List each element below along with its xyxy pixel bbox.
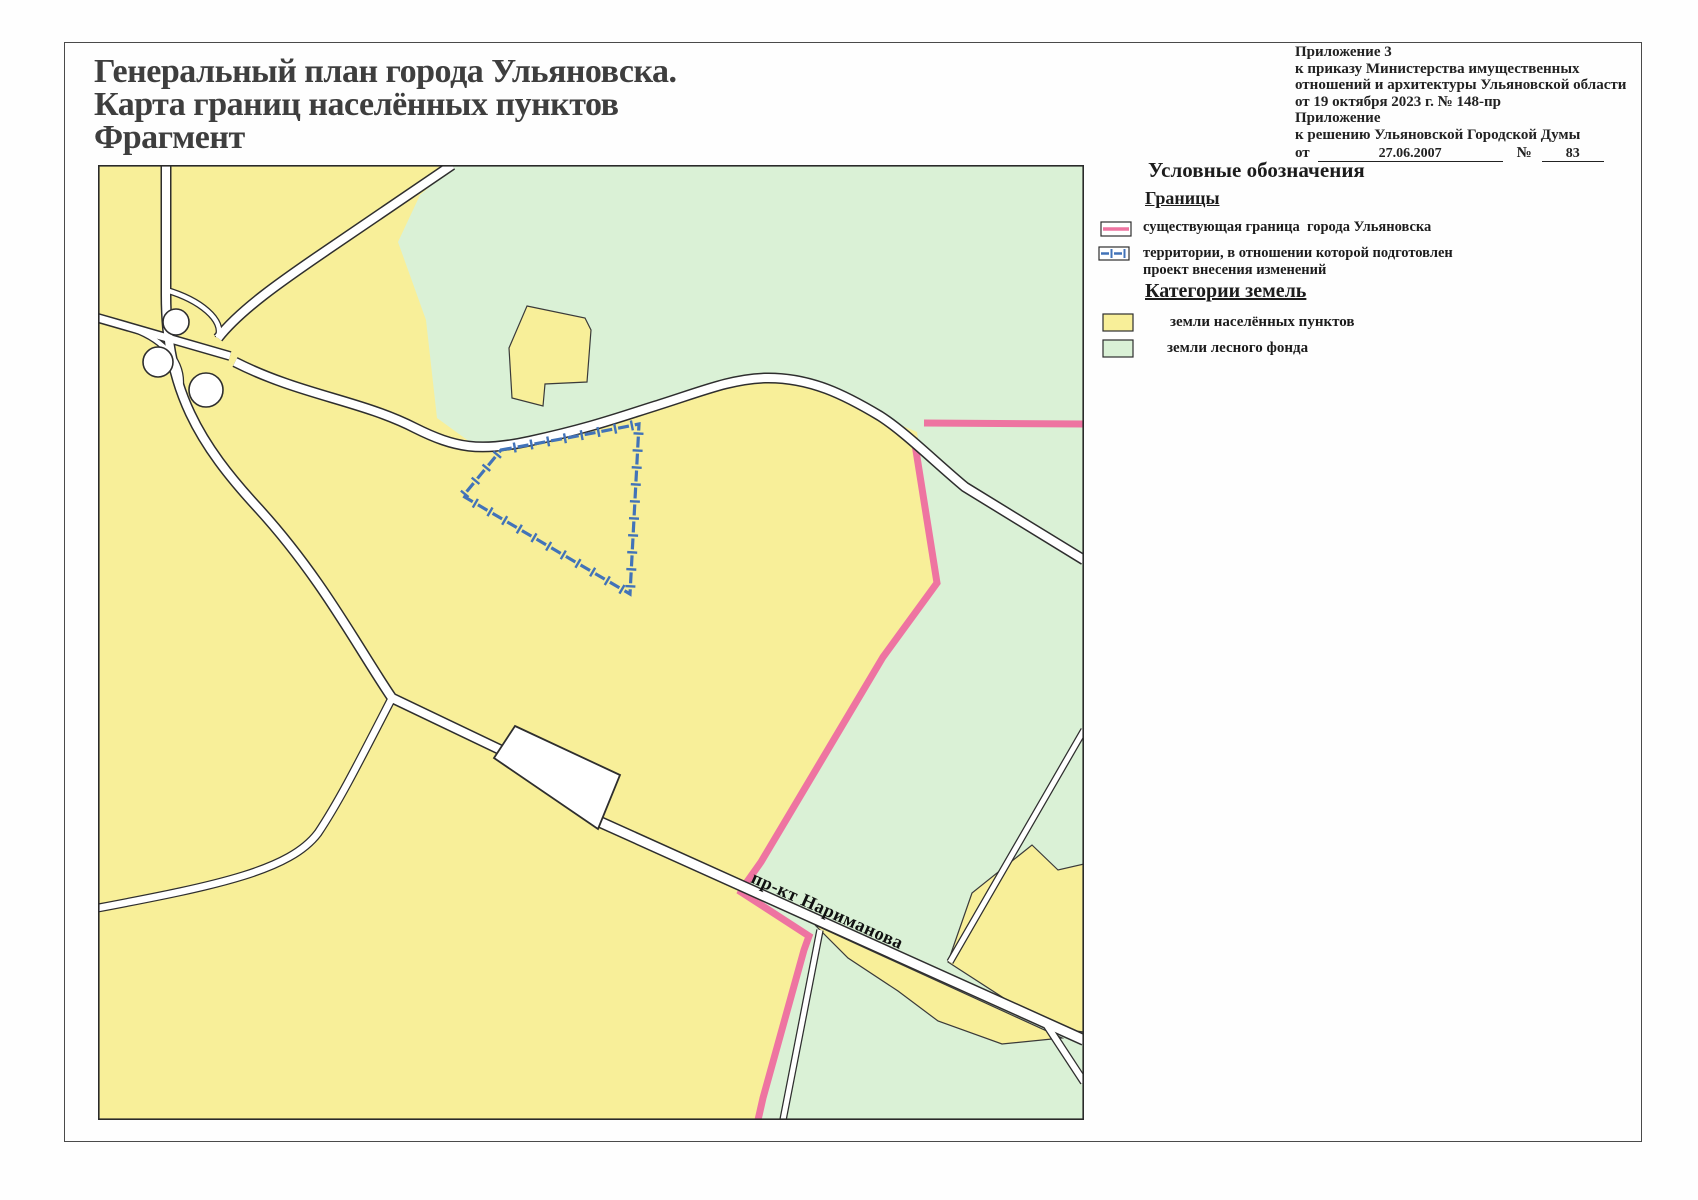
legend-swatch-existing-boundary xyxy=(1100,221,1132,237)
title-line-1: Генеральный план города Ульяновска. xyxy=(94,55,814,88)
map-svg: пр-кт Нариманова xyxy=(98,165,1084,1120)
annotation-line: от 19 октября 2023 г. № 148-пр xyxy=(1295,94,1675,111)
number-value: 83 xyxy=(1542,146,1604,162)
legend-section-borders: Границы xyxy=(1145,188,1220,209)
page-title: Генеральный план города Ульяновска. Карт… xyxy=(94,55,814,154)
interchange-loop xyxy=(143,347,173,377)
interchange-loop xyxy=(189,373,223,407)
legend-swatch-project-territory xyxy=(1098,246,1130,261)
legend-swatch-settlement-lands xyxy=(1102,313,1134,332)
yellow-fill-icon xyxy=(1103,314,1133,331)
legend-label-forest-lands: земли лесного фонда xyxy=(1167,340,1308,357)
interchange-loop xyxy=(163,309,189,335)
legend-label-existing-boundary: существующая граница города Ульяновска xyxy=(1143,219,1483,236)
legal-annotation: Приложение 3 к приказу Министерства имущ… xyxy=(1295,44,1675,162)
annotation-line: Приложение xyxy=(1295,110,1675,127)
annotation-line: к решению Ульяновской Городской Думы xyxy=(1295,127,1675,144)
title-line-3: Фрагмент xyxy=(94,121,814,154)
number-sign: № xyxy=(1517,145,1532,162)
legend-label-project-territory: территории, в отношении которой подготов… xyxy=(1143,245,1473,279)
legend-label-settlement-lands: земли населённых пунктов xyxy=(1170,314,1355,331)
annotation-line: отношений и архитектуры Ульяновской обла… xyxy=(1295,77,1675,94)
legend-title: Условные обозначения xyxy=(1148,158,1365,183)
annotation-line: Приложение 3 xyxy=(1295,44,1675,61)
title-line-2: Карта границ населённых пунктов xyxy=(94,88,814,121)
green-fill-icon xyxy=(1103,340,1133,357)
document-page: Генеральный план города Ульяновска. Карт… xyxy=(0,0,1698,1200)
legend-section-land-categories: Категории земель xyxy=(1145,280,1306,303)
legend-swatch-forest-lands xyxy=(1102,339,1134,358)
map-area: пр-кт Нариманова xyxy=(98,165,1084,1120)
annotation-line: к приказу Министерства имущественных xyxy=(1295,61,1675,78)
